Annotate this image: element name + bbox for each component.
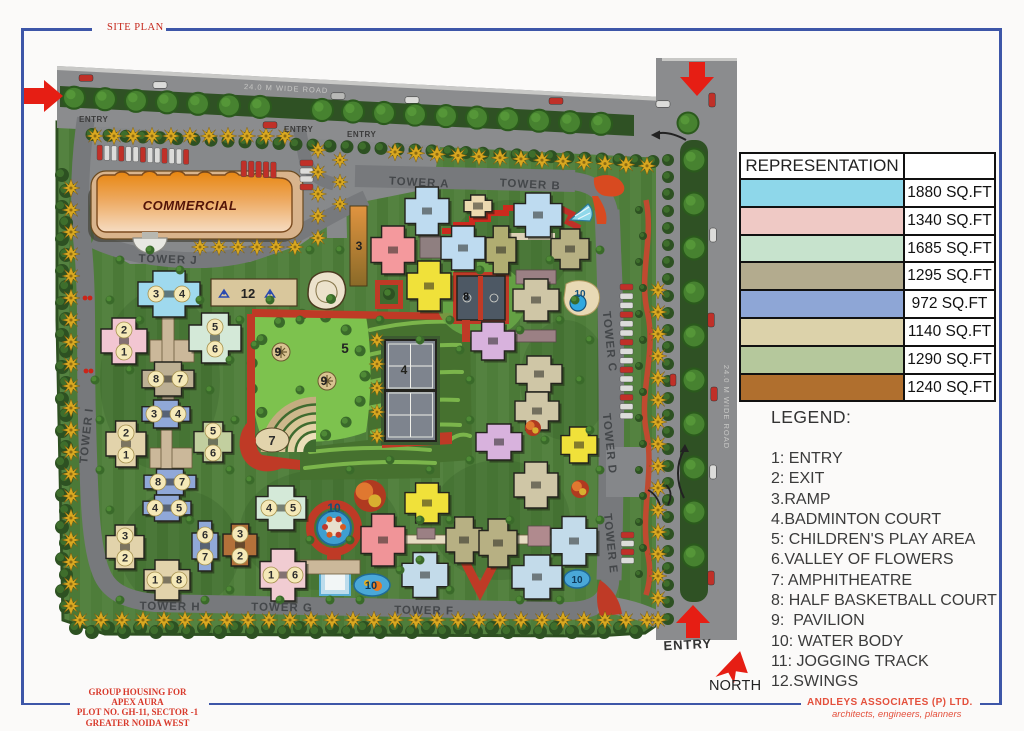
svg-text:10: 10 xyxy=(365,580,377,592)
svg-text:24.0 M WIDE ROAD: 24.0 M WIDE ROAD xyxy=(722,365,731,449)
svg-text:8: 8 xyxy=(176,575,182,587)
svg-text:2: 2 xyxy=(237,551,243,563)
svg-text:1: 1 xyxy=(123,450,129,462)
svg-text:ENTRY: ENTRY xyxy=(284,125,313,134)
svg-text:7: 7 xyxy=(202,552,208,564)
svg-text:3: 3 xyxy=(356,239,363,253)
svg-text:4: 4 xyxy=(401,363,408,377)
svg-text:6: 6 xyxy=(202,530,208,542)
svg-text:1: 1 xyxy=(268,570,274,582)
svg-text:3: 3 xyxy=(237,529,243,541)
svg-text:8: 8 xyxy=(155,477,161,489)
svg-text:12: 12 xyxy=(241,286,255,301)
svg-text:5: 5 xyxy=(210,426,216,438)
svg-text:6: 6 xyxy=(212,344,218,356)
svg-text:10: 10 xyxy=(327,501,341,515)
svg-text:TOWER H: TOWER H xyxy=(139,600,200,613)
svg-text:1: 1 xyxy=(152,575,158,587)
svg-text:4: 4 xyxy=(152,503,159,515)
svg-text:7: 7 xyxy=(177,374,183,386)
svg-text:2: 2 xyxy=(123,428,129,440)
svg-text:5: 5 xyxy=(341,341,349,356)
svg-text:TOWER J: TOWER J xyxy=(138,253,198,267)
svg-text:10: 10 xyxy=(571,575,583,586)
svg-text:TOWER G: TOWER G xyxy=(251,601,313,614)
svg-text:5: 5 xyxy=(176,503,182,515)
svg-text:ENTRY: ENTRY xyxy=(79,115,108,124)
svg-text:9: 9 xyxy=(321,374,328,388)
svg-text:8: 8 xyxy=(463,291,469,303)
svg-text:2: 2 xyxy=(122,553,128,565)
svg-text:5: 5 xyxy=(290,503,296,515)
svg-text:6: 6 xyxy=(292,570,298,582)
svg-text:6: 6 xyxy=(210,448,216,460)
svg-text:7: 7 xyxy=(179,477,185,489)
svg-text:5: 5 xyxy=(212,322,218,334)
svg-text:4: 4 xyxy=(266,503,273,515)
svg-text:9: 9 xyxy=(275,345,282,359)
svg-text:8: 8 xyxy=(153,374,159,386)
svg-text:3: 3 xyxy=(151,409,157,421)
svg-text:1: 1 xyxy=(121,347,127,359)
svg-text:3: 3 xyxy=(153,289,159,301)
svg-text:ENTRY: ENTRY xyxy=(663,636,712,654)
svg-text:3: 3 xyxy=(122,531,128,543)
svg-text:4: 4 xyxy=(179,289,186,301)
svg-text:2: 2 xyxy=(121,325,127,337)
svg-text:TOWER F: TOWER F xyxy=(394,604,454,617)
svg-text:COMMERCIAL: COMMERCIAL xyxy=(143,198,238,213)
svg-text:7: 7 xyxy=(268,433,275,448)
svg-text:ENTRY: ENTRY xyxy=(347,130,376,139)
svg-text:4: 4 xyxy=(175,409,182,421)
